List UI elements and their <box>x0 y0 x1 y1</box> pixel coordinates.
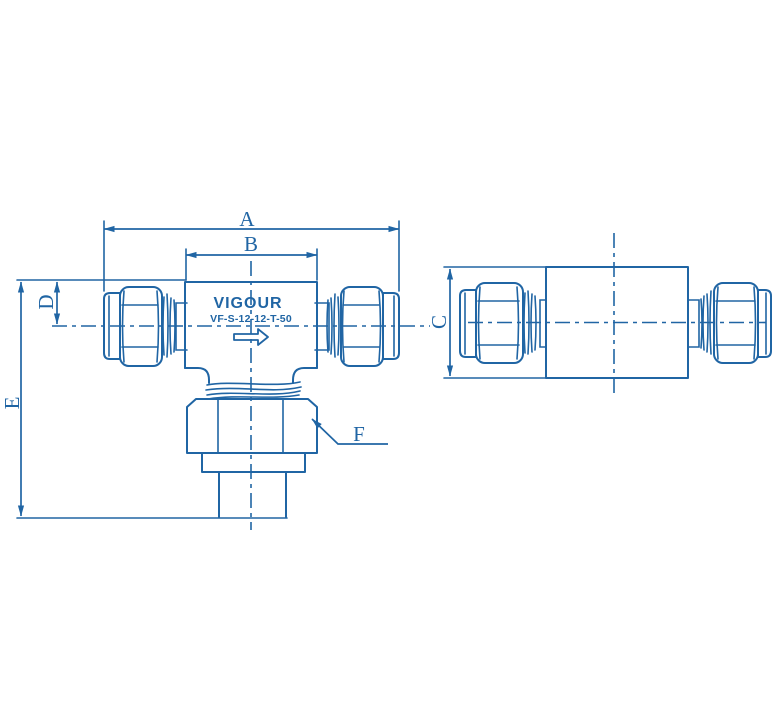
dim-label-a: A <box>239 207 255 231</box>
technical-drawing: VIGOUR VF-S-12-12-T-50 <box>0 0 780 708</box>
brand-logo-text: VIGOUR <box>213 295 282 312</box>
dim-label-c: C <box>427 315 451 329</box>
dim-label-f: F <box>353 422 365 446</box>
side-left-end-cap <box>460 290 476 357</box>
brand-logo: VIGOUR <box>212 294 284 312</box>
dimension-lines <box>17 221 546 518</box>
dim-f-leader <box>312 419 388 444</box>
dim-label-e: E <box>0 397 24 410</box>
drawing-canvas: VIGOUR VF-S-12-12-T-50 <box>0 0 780 708</box>
front-branch-washer <box>202 453 305 472</box>
front-branch-hex-nut <box>187 399 317 453</box>
side-view-fitting <box>460 233 771 397</box>
front-branch-tube <box>219 472 286 517</box>
side-right-end-cap <box>758 290 771 357</box>
front-branch-thread-lines <box>206 382 301 399</box>
dim-label-b: B <box>244 232 258 256</box>
dim-label-d: D <box>34 294 58 309</box>
